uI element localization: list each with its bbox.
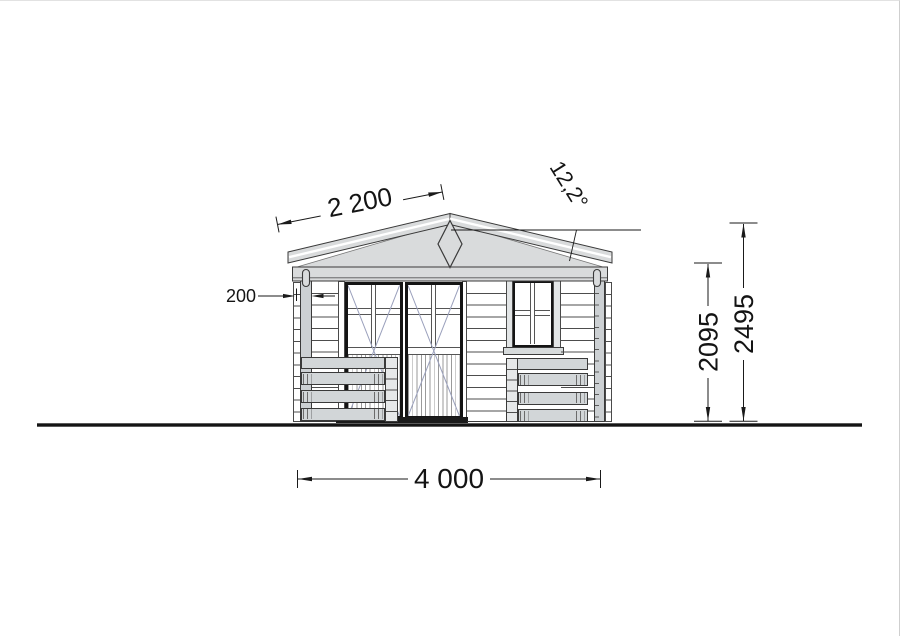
wall-middle-segment xyxy=(467,282,506,422)
window-casing-left xyxy=(506,279,513,349)
window-sill xyxy=(503,347,564,355)
dim-label-roof-slope: 2 200 xyxy=(325,181,395,223)
dimension-roof-angle: 12,2° xyxy=(451,156,641,261)
board-end-grain xyxy=(520,411,529,421)
fascia-highlight-left xyxy=(289,219,450,258)
board-end-grain xyxy=(576,375,585,385)
gable-triangle xyxy=(297,222,603,267)
railing-board xyxy=(301,372,385,385)
dimension-ridge-height: 2495 xyxy=(729,223,759,421)
board-end-grain xyxy=(520,375,529,385)
dim-label-wall-height: 2095 xyxy=(694,312,724,372)
fascia-highlight-right xyxy=(450,219,611,258)
dim-arrow xyxy=(741,224,745,238)
dim-arrow xyxy=(706,264,710,278)
board-end-grain xyxy=(374,409,383,419)
window-casing-right xyxy=(553,279,561,349)
dimension-roof-slope: 2 200 xyxy=(273,171,444,233)
dim-arrow xyxy=(298,477,312,481)
door-swing-lines xyxy=(408,285,460,416)
board-end-grain xyxy=(303,374,312,384)
dim-arrow xyxy=(741,407,745,421)
board-end-grain xyxy=(374,374,383,384)
dim-arrow xyxy=(706,407,710,421)
dim-label-total-width: 4 000 xyxy=(414,463,484,494)
dim-label-roof-angle: 12,2° xyxy=(545,156,594,213)
ground-line xyxy=(37,423,862,426)
board-end-grain xyxy=(303,409,312,419)
glazing-bar-vertical xyxy=(530,283,535,344)
board-end-grain xyxy=(576,411,585,421)
door-leaf-right xyxy=(405,282,463,419)
board-end-grain xyxy=(520,393,529,403)
railing-post-left-section xyxy=(385,357,398,422)
railing-post-right-section xyxy=(506,358,519,422)
dim-arrow xyxy=(428,190,443,197)
right-log-ends xyxy=(605,282,613,422)
railing-handrail-left xyxy=(301,357,385,369)
board-end-grain xyxy=(576,393,585,403)
dimension-wall-height: 2095 xyxy=(694,263,724,421)
dimension-total-width: 4 000 xyxy=(298,463,601,494)
board-end-grain xyxy=(303,392,312,402)
elevation-drawing: 2 200 12,2° 200 xyxy=(0,0,900,636)
railing-board xyxy=(301,408,385,422)
window xyxy=(513,281,553,347)
roof-fascia-left xyxy=(288,214,450,264)
dim-arrow xyxy=(586,477,600,481)
log-joint-ticks xyxy=(595,283,599,421)
dim-arrow xyxy=(277,220,292,227)
right-corner-post xyxy=(594,280,605,422)
roof-fascia-right xyxy=(450,214,612,264)
dim-label-log-thickness: 200 xyxy=(226,286,256,306)
dim-label-ridge-height: 2495 xyxy=(729,294,759,354)
roof-peak-ornament xyxy=(438,221,462,268)
board-end-grain xyxy=(374,392,383,402)
railing-board xyxy=(301,390,385,403)
